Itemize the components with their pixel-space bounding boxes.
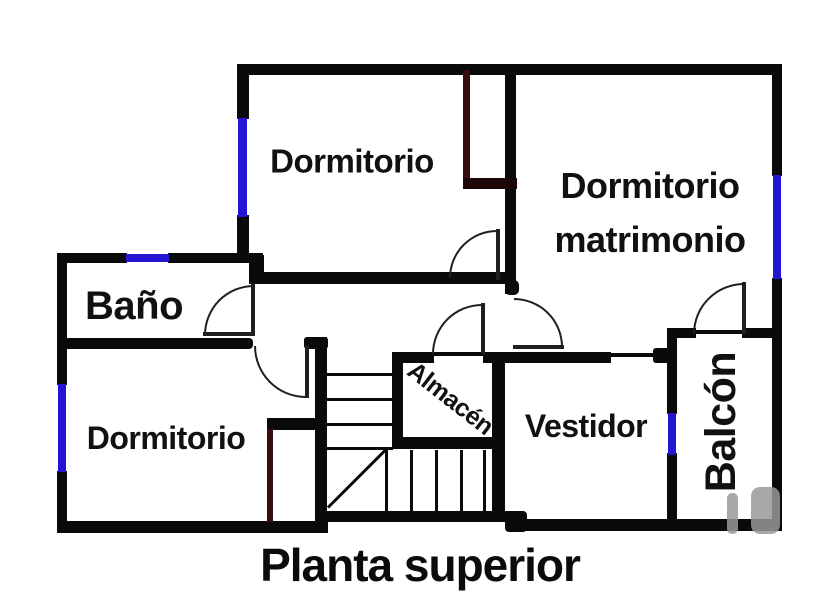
- watermark: [727, 493, 738, 534]
- wall: [742, 328, 782, 338]
- wall: [57, 253, 127, 263]
- closet-wall: [463, 70, 470, 182]
- wall: [318, 511, 514, 522]
- wall: [392, 437, 504, 449]
- window: [238, 118, 247, 217]
- wall: [57, 521, 328, 533]
- floor-plan: DormitorioDormitorio matrimonioBañoDormi…: [0, 0, 840, 600]
- wall: [57, 338, 253, 349]
- opening-line: [385, 450, 388, 511]
- wall: [667, 328, 677, 414]
- closet-wall: [463, 178, 517, 189]
- closet-wall: [267, 429, 273, 522]
- wall: [492, 352, 505, 519]
- window: [773, 175, 781, 279]
- door-swing-arc: [514, 298, 563, 347]
- wall: [168, 253, 263, 263]
- wall: [267, 418, 318, 430]
- window: [126, 254, 169, 262]
- watermark: [751, 487, 780, 534]
- opening-line: [460, 450, 463, 511]
- door-swing-arc: [449, 230, 497, 278]
- opening-line: [435, 450, 438, 511]
- window: [58, 384, 66, 472]
- room-label-dormitorio-top: Dormitorio: [270, 140, 434, 181]
- wall: [57, 253, 67, 385]
- door-swing-arc: [693, 283, 744, 334]
- wall: [392, 352, 403, 449]
- wall: [772, 64, 782, 176]
- room-label-dormitorio-matrimonio: Dormitorio matrimonio: [554, 159, 745, 267]
- wall: [315, 337, 327, 523]
- window: [668, 413, 676, 455]
- room-label-almacen: Almacén: [401, 356, 500, 443]
- opening-line: [327, 423, 393, 426]
- opening-line: [610, 353, 654, 357]
- floor-plan-image: DormitorioDormitorio matrimonioBañoDormi…: [0, 0, 840, 600]
- opening-line: [410, 450, 413, 511]
- wall: [237, 64, 249, 119]
- wall: [505, 280, 519, 295]
- door-swing-arc: [432, 304, 482, 354]
- room-label-vestidor: Vestidor: [525, 406, 647, 446]
- opening-line: [327, 398, 393, 401]
- door-swing-arc: [204, 285, 254, 335]
- plan-title: Planta superior: [0, 538, 840, 592]
- room-label-dormitorio-bottom: Dormitorio: [87, 418, 246, 458]
- opening-line: [327, 373, 393, 376]
- door-swing-arc: [254, 346, 306, 398]
- stair-diagonal: [327, 447, 389, 509]
- wall: [513, 519, 782, 531]
- wall: [667, 453, 677, 528]
- room-label-bano: Baño: [85, 281, 183, 331]
- room-label-balcon: Balcón: [695, 352, 749, 492]
- opening-line: [483, 450, 486, 511]
